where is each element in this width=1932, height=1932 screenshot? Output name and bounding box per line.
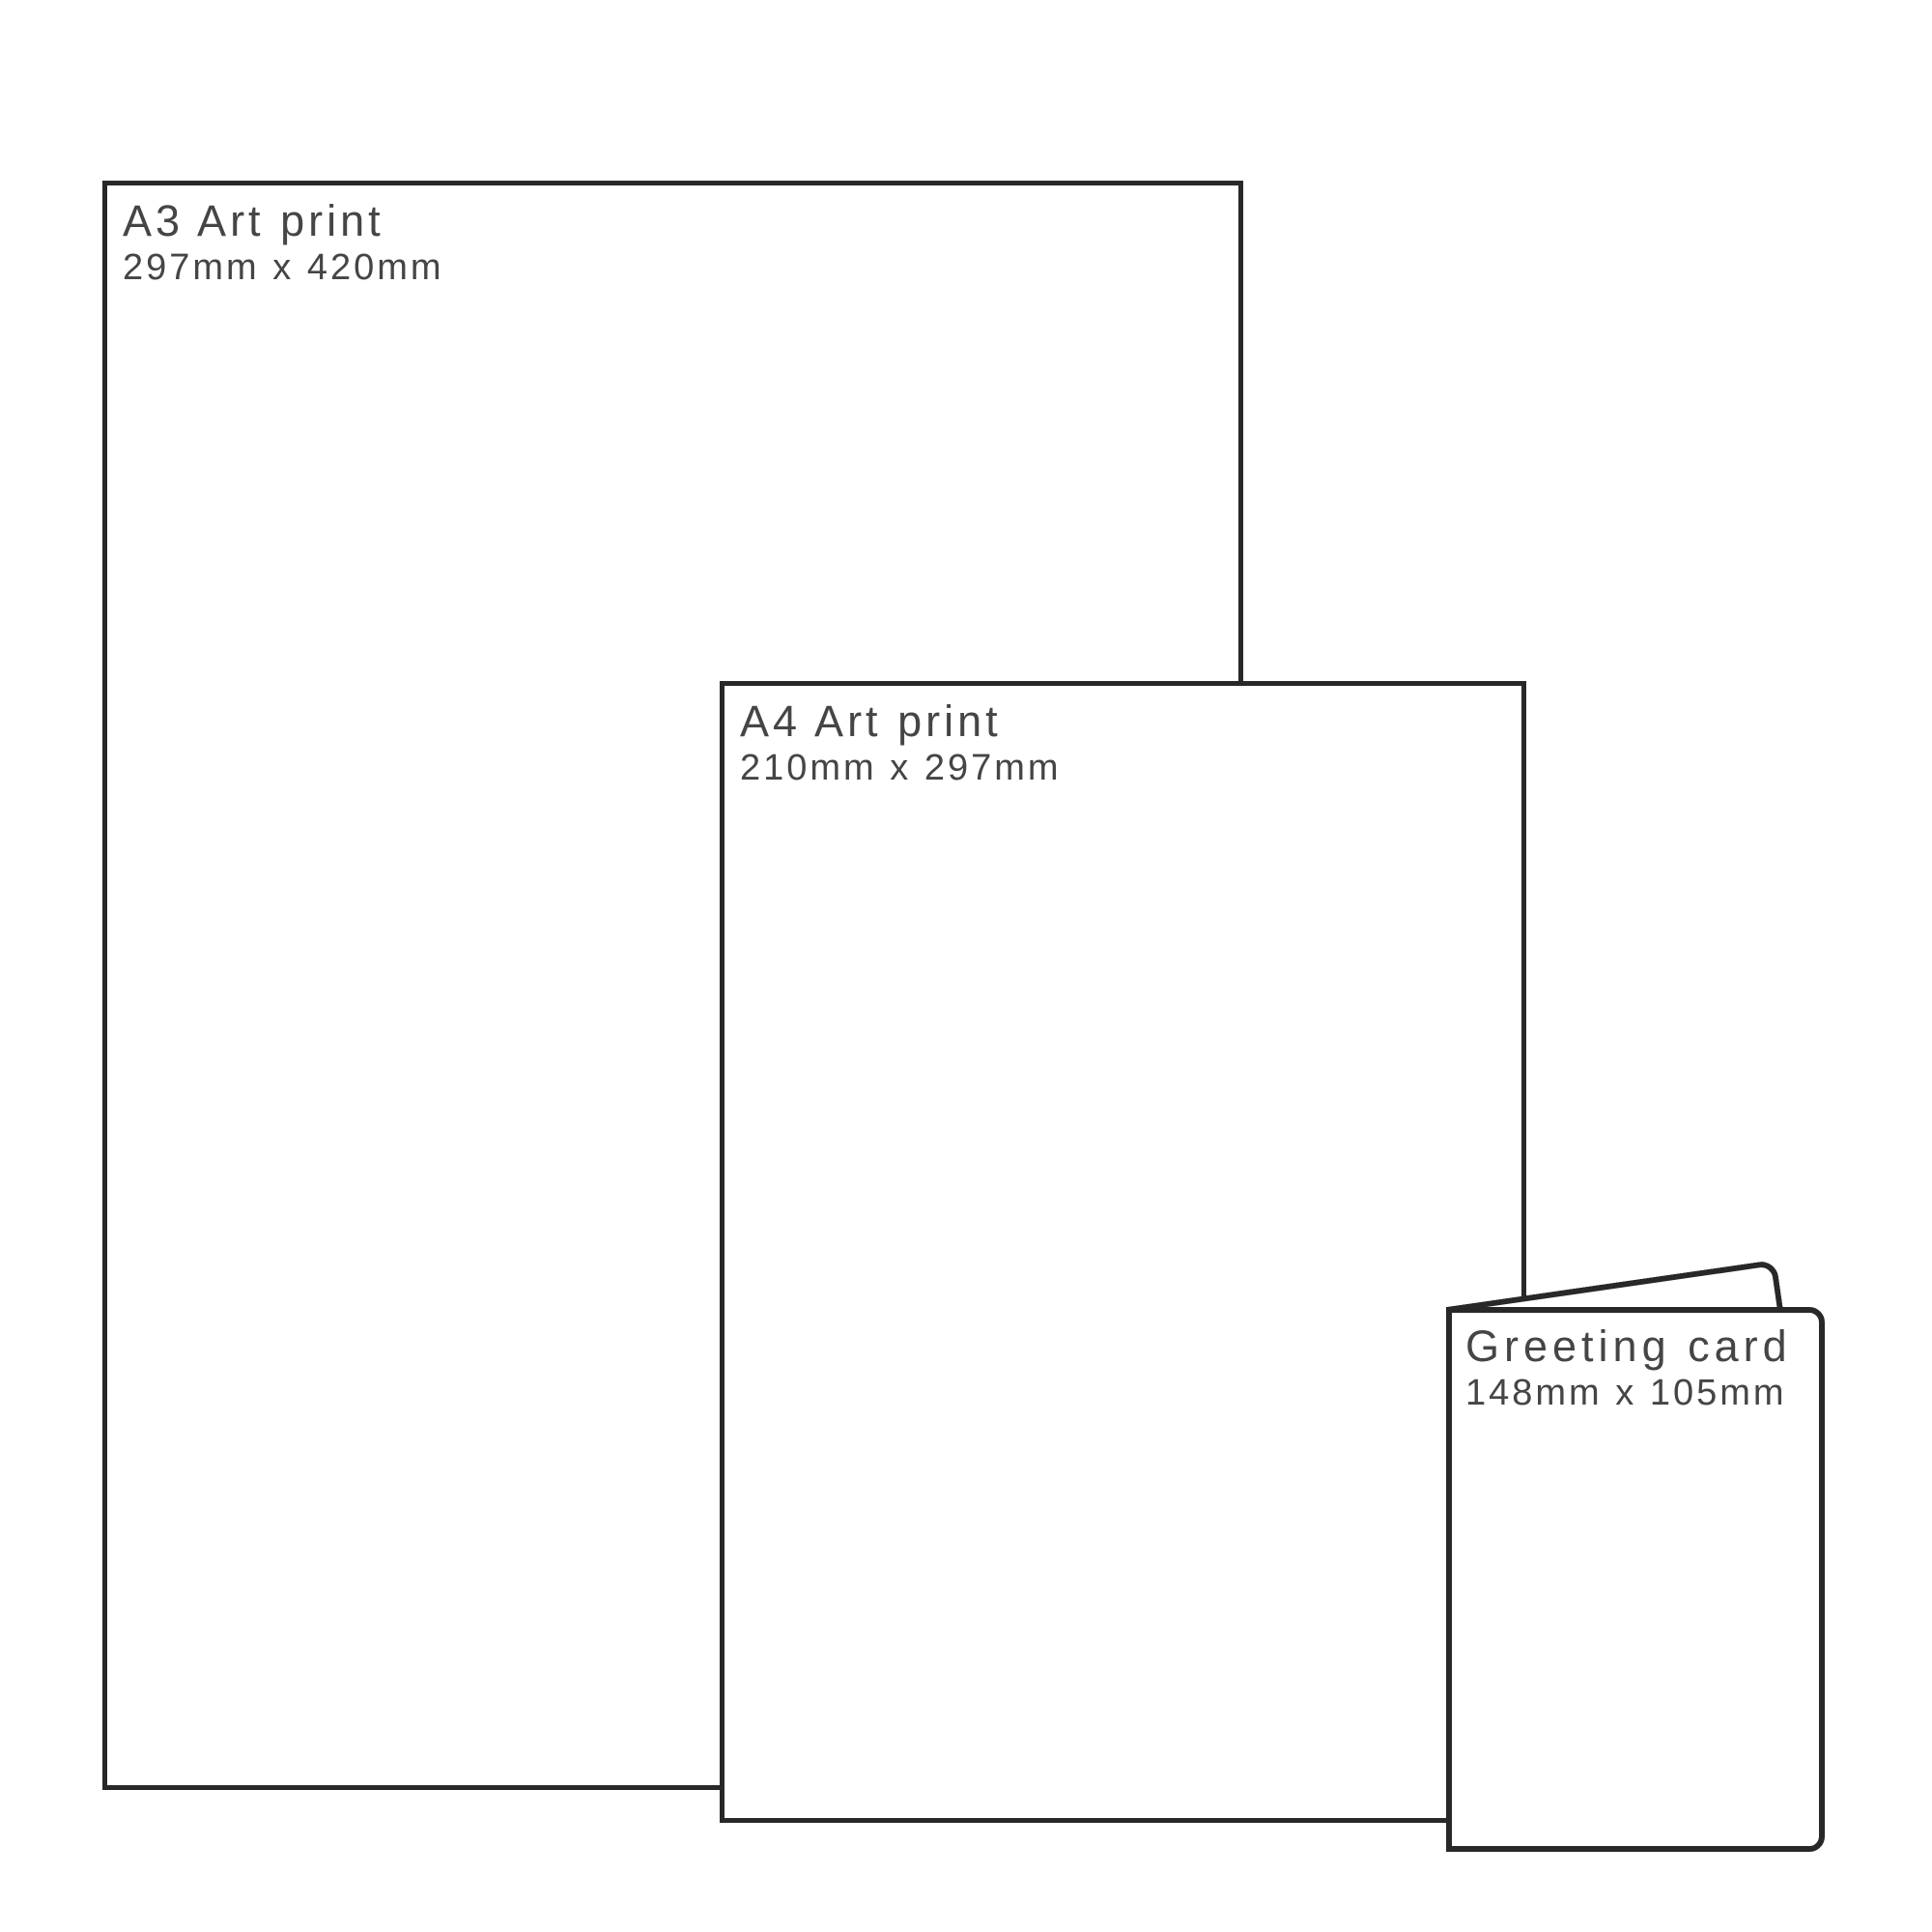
- a4-print-label: A4 Art print 210mm x 297mm: [724, 686, 1521, 790]
- a3-print-title: A3 Art print: [123, 197, 1231, 245]
- a4-print-title: A4 Art print: [740, 697, 1514, 746]
- a3-print-label: A3 Art print 297mm x 420mm: [107, 185, 1238, 290]
- greeting-card-outline: Greeting card 148mm x 105mm: [1446, 1307, 1825, 1852]
- a4-print-outline: A4 Art print 210mm x 297mm: [720, 681, 1526, 1823]
- a4-print-dimensions: 210mm x 297mm: [740, 748, 1514, 790]
- greeting-card-dimensions: 148mm x 105mm: [1465, 1373, 1815, 1415]
- a3-print-dimensions: 297mm x 420mm: [123, 247, 1231, 290]
- greeting-card-title: Greeting card: [1465, 1322, 1815, 1371]
- size-comparison-diagram: A3 Art print 297mm x 420mm A4 Art print …: [0, 0, 1932, 1932]
- greeting-card-label: Greeting card 148mm x 105mm: [1452, 1313, 1819, 1415]
